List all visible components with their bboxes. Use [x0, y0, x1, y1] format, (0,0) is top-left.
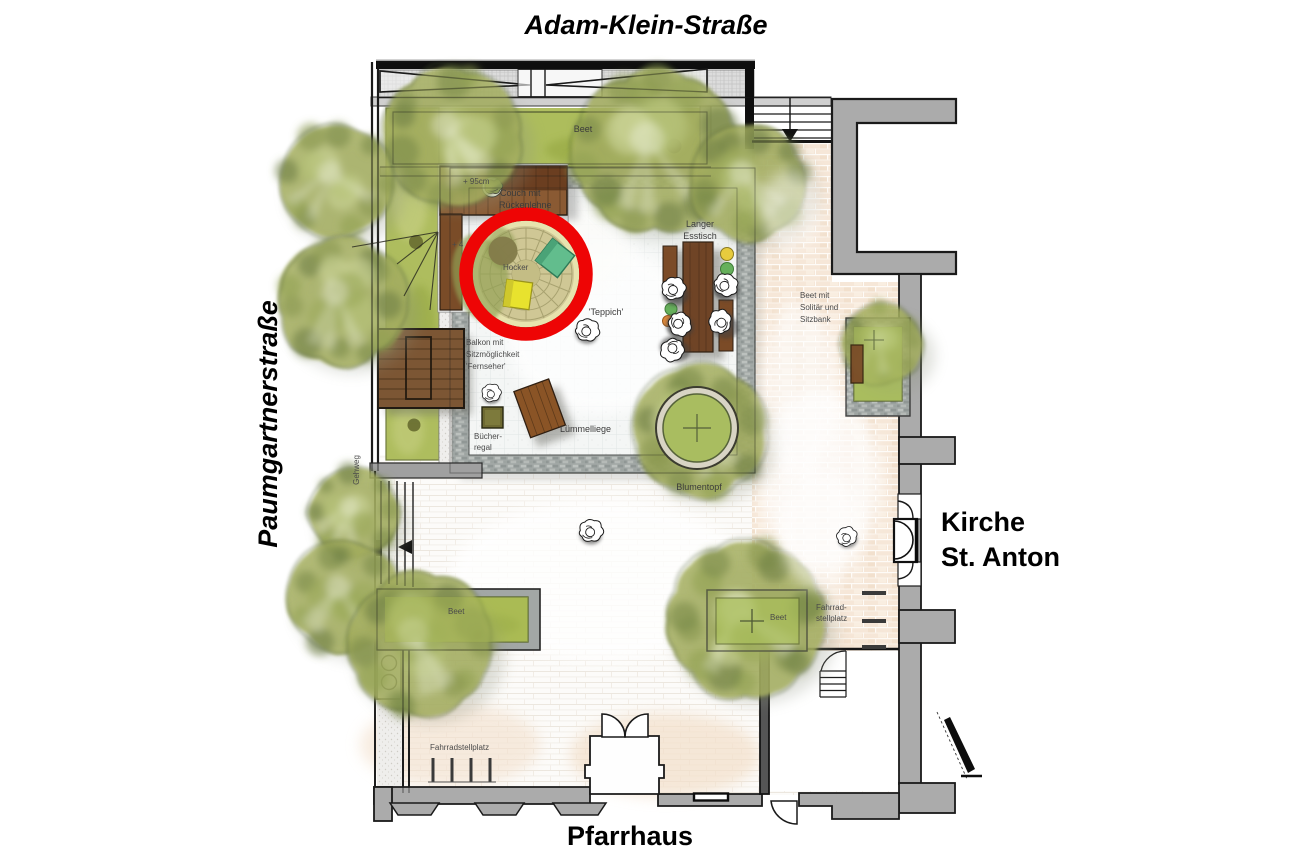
svg-text:+ 95cm: + 95cm — [463, 177, 490, 186]
svg-text:stellplatz: stellplatz — [816, 614, 847, 623]
svg-text:Sitzbank: Sitzbank — [800, 315, 832, 324]
svg-text:Beet mit: Beet mit — [800, 291, 830, 300]
svg-text:Bücher-: Bücher- — [474, 432, 502, 441]
svg-text:'Fernseher': 'Fernseher' — [466, 362, 506, 371]
svg-text:Kirche: Kirche — [941, 507, 1025, 537]
svg-text:regal: regal — [474, 443, 492, 452]
svg-text:Blumentopf: Blumentopf — [676, 482, 722, 492]
svg-text:Beet: Beet — [574, 124, 593, 134]
svg-text:St. Anton: St. Anton — [941, 542, 1060, 572]
svg-text:Solitär und: Solitär und — [800, 303, 838, 312]
svg-text:Fahrrad-: Fahrrad- — [816, 603, 847, 612]
svg-text:Beet: Beet — [770, 613, 787, 622]
svg-text:Beet: Beet — [448, 607, 465, 616]
svg-text:Esstisch: Esstisch — [683, 231, 717, 241]
svg-text:Adam-Klein-Straße: Adam-Klein-Straße — [523, 10, 767, 40]
svg-text:Fahrradstellplatz: Fahrradstellplatz — [430, 743, 489, 752]
svg-text:+ 4: + 4 — [452, 240, 464, 249]
svg-text:Paumgartnerstraße: Paumgartnerstraße — [253, 300, 283, 548]
svg-text:Pfarrhaus: Pfarrhaus — [567, 821, 693, 851]
svg-text:Langer: Langer — [686, 219, 714, 229]
svg-text:Gehweg: Gehweg — [352, 455, 361, 485]
svg-text:Lümmelliege: Lümmelliege — [560, 424, 611, 434]
svg-text:Sitzmöglichkeit: Sitzmöglichkeit — [466, 350, 520, 359]
svg-text:Hocker: Hocker — [503, 263, 529, 272]
svg-text:Couch mit: Couch mit — [500, 188, 541, 198]
svg-text:'Teppich': 'Teppich' — [589, 307, 624, 317]
svg-text:Rückenlehne: Rückenlehne — [499, 200, 552, 210]
svg-text:Balkon mit: Balkon mit — [466, 338, 504, 347]
